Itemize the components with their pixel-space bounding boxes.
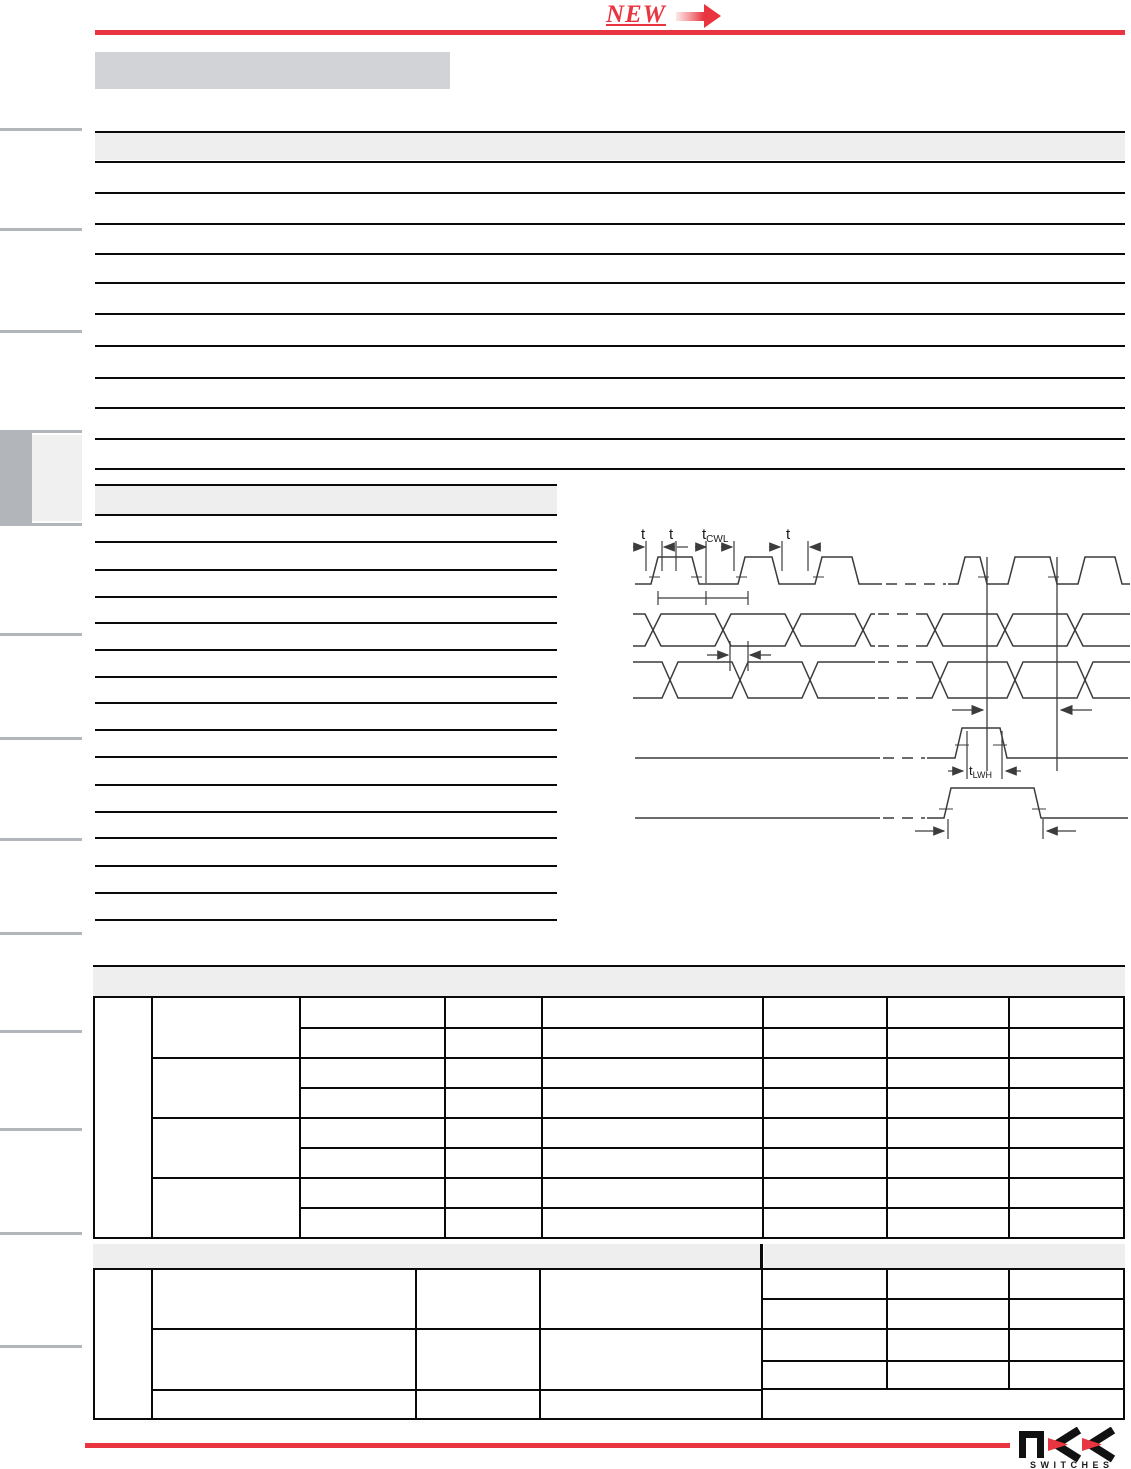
edge-tab-divider-9 bbox=[0, 1030, 82, 1033]
table2-row-line-2 bbox=[95, 596, 557, 598]
tableA-subrow-line-1 bbox=[299, 1087, 1125, 1089]
tableB-row-line-right-2 bbox=[761, 1388, 1125, 1390]
nkk-logo-n-glyph bbox=[1019, 1431, 1044, 1458]
tableB-vline-3 bbox=[539, 1268, 541, 1420]
edge-tab-divider-10 bbox=[0, 1128, 82, 1131]
tableB-vline-1 bbox=[151, 1268, 153, 1420]
tableB-row-line-right-1 bbox=[761, 1360, 1125, 1362]
tableA-group-line-1 bbox=[151, 1117, 1125, 1119]
label-t-cwl: tCWL bbox=[702, 526, 729, 545]
table2-row-line-0 bbox=[95, 541, 557, 543]
table1-row-line-6 bbox=[95, 345, 1125, 347]
table2-row-line-11 bbox=[95, 837, 557, 839]
tableB-row-line-shared bbox=[151, 1328, 1125, 1330]
table2-header-band bbox=[95, 486, 557, 514]
label-t4: t bbox=[786, 526, 791, 543]
tableA-subrow-line-0 bbox=[299, 1027, 1125, 1029]
data-bus-1 bbox=[633, 614, 1130, 646]
new-arrow-icon bbox=[676, 12, 704, 21]
table2-row-line-9 bbox=[95, 784, 557, 786]
edge-tab-divider-12 bbox=[0, 1345, 82, 1348]
table1-row-line-1 bbox=[95, 192, 1125, 194]
tableB-header-band-right bbox=[764, 1244, 1125, 1268]
table1-row-line-7 bbox=[95, 377, 1125, 379]
latch-waveform bbox=[635, 788, 1128, 818]
timing-diagram: t t tCWL t bbox=[630, 513, 1131, 848]
table2-row-line-8 bbox=[95, 756, 557, 758]
table2-row-line-14 bbox=[95, 919, 557, 921]
tableB-row-line-left bbox=[151, 1389, 762, 1391]
edge-tab-divider-2 bbox=[0, 330, 82, 333]
label-t1: t bbox=[641, 526, 646, 543]
tableB-vline-0 bbox=[93, 1268, 95, 1420]
table1-row-line-5 bbox=[95, 313, 1125, 315]
tableA-group-line-2 bbox=[151, 1177, 1125, 1179]
table1-row-line-8 bbox=[95, 407, 1125, 409]
table1-row-line-0 bbox=[95, 161, 1125, 163]
strobe-waveform bbox=[635, 728, 1128, 758]
table2-row-line-7 bbox=[95, 729, 557, 731]
tableB-bottom-line bbox=[93, 1418, 1125, 1420]
table2-row-line-10 bbox=[95, 811, 557, 813]
tableB-vline-2 bbox=[415, 1268, 417, 1420]
edge-tab-divider-4 bbox=[0, 523, 82, 526]
tableA-vline-0 bbox=[93, 996, 95, 1239]
table2-header-bottom-line bbox=[95, 514, 557, 516]
tableA-bottom-line bbox=[93, 1237, 1125, 1239]
nkk-logo: SWITCHES bbox=[1016, 1427, 1128, 1469]
tableB-vline-4 bbox=[761, 1268, 763, 1420]
edge-tab-divider-5 bbox=[0, 633, 82, 636]
tableA-subrow-line-3 bbox=[299, 1207, 1125, 1209]
edge-tab-divider-8 bbox=[0, 932, 82, 935]
tableB-row-line-right-0 bbox=[761, 1298, 1125, 1300]
table1-row-line-9 bbox=[95, 438, 1125, 440]
dimension-marks-bottom bbox=[915, 819, 1076, 839]
tableA-header-band bbox=[93, 967, 1125, 996]
label-t2: t bbox=[669, 526, 674, 543]
table2-row-line-4 bbox=[95, 649, 557, 651]
table2-row-line-3 bbox=[95, 622, 557, 624]
table1-row-line-10 bbox=[95, 468, 1125, 470]
data-bus-2 bbox=[633, 662, 1130, 698]
new-arrow-head-icon bbox=[704, 4, 721, 28]
dimension-marks-top bbox=[633, 541, 821, 671]
clock-waveform bbox=[635, 557, 1130, 584]
edge-tab-active-dark bbox=[0, 433, 32, 523]
edge-tab-divider-1 bbox=[0, 228, 82, 231]
tableA-subrow-line-2 bbox=[299, 1147, 1125, 1149]
nkk-logo-k-glyphs bbox=[1048, 1430, 1113, 1459]
table2-row-line-12 bbox=[95, 865, 557, 867]
tableB-header-bottom-line bbox=[93, 1268, 1125, 1270]
new-badge-label: NEW bbox=[606, 1, 666, 29]
edge-tab-divider-7 bbox=[0, 838, 82, 841]
tableB-header-divider bbox=[760, 1244, 763, 1268]
table1-header-band bbox=[95, 133, 1125, 160]
label-t-lwh: tLWH bbox=[969, 763, 992, 780]
footer-red-rule bbox=[85, 1443, 1010, 1448]
table2-row-line-5 bbox=[95, 676, 557, 678]
tableA-group-line-0 bbox=[151, 1057, 1125, 1059]
table1-row-line-2 bbox=[95, 223, 1125, 225]
top-red-rule bbox=[95, 30, 1125, 35]
table1-row-line-3 bbox=[95, 253, 1125, 255]
table1-row-line-4 bbox=[95, 282, 1125, 284]
table2-row-line-6 bbox=[95, 702, 557, 704]
edge-tab-divider-11 bbox=[0, 1232, 82, 1235]
edge-tab-active-light bbox=[32, 435, 82, 521]
tableB-header-band-left bbox=[93, 1244, 760, 1268]
table2-row-line-13 bbox=[95, 892, 557, 894]
title-band bbox=[95, 52, 450, 89]
tableA-header-bottom-line bbox=[93, 996, 1125, 998]
table2-row-line-1 bbox=[95, 569, 557, 571]
nkk-logo-tagline: SWITCHES bbox=[1030, 1460, 1114, 1469]
edge-tab-divider-6 bbox=[0, 737, 82, 740]
tableB-vline-7 bbox=[1123, 1268, 1125, 1420]
edge-tab-divider-0 bbox=[0, 128, 82, 131]
datasheet-page: NEW t t bbox=[0, 0, 1131, 1469]
